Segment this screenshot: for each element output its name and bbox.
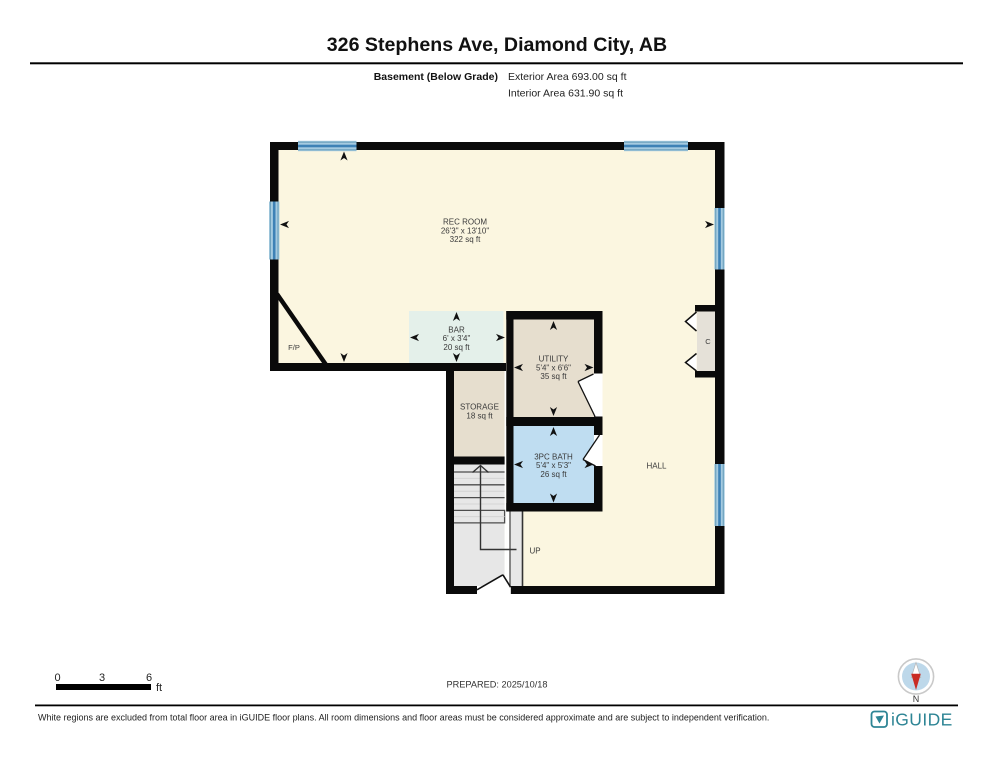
svg-text:Exterior Area 693.00 sq ft: Exterior Area 693.00 sq ft	[508, 71, 627, 83]
svg-text:C: C	[705, 337, 711, 346]
svg-text:26 sq ft: 26 sq ft	[540, 470, 567, 479]
svg-text:Basement (Below Grade): Basement (Below Grade)	[374, 71, 498, 83]
svg-text:BAR: BAR	[448, 326, 465, 335]
svg-text:26'3" x 13'10": 26'3" x 13'10"	[441, 226, 489, 235]
svg-text:3: 3	[99, 672, 105, 684]
svg-text:STORAGE: STORAGE	[460, 402, 499, 411]
svg-text:5'4" x 6'6": 5'4" x 6'6"	[536, 363, 571, 372]
svg-text:Interior Area 631.90 sq ft: Interior Area 631.90 sq ft	[508, 88, 623, 100]
svg-text:35 sq ft: 35 sq ft	[540, 372, 567, 381]
svg-text:322 sq ft: 322 sq ft	[450, 235, 481, 244]
svg-text:iGUIDE: iGUIDE	[891, 710, 953, 730]
svg-text:White regions are excluded fro: White regions are excluded from total fl…	[38, 713, 769, 723]
svg-text:5'4" x 5'3": 5'4" x 5'3"	[536, 461, 571, 470]
svg-text:20 sq ft: 20 sq ft	[443, 343, 470, 352]
svg-text:ft: ft	[156, 682, 162, 694]
svg-text:UTILITY: UTILITY	[539, 355, 569, 364]
svg-text:REC ROOM: REC ROOM	[443, 218, 487, 227]
svg-text:HALL: HALL	[646, 462, 667, 471]
svg-text:18 sq ft: 18 sq ft	[466, 411, 493, 420]
svg-text:F/P: F/P	[288, 343, 300, 352]
svg-text:6' x 3'4": 6' x 3'4"	[443, 334, 471, 343]
svg-text:UP: UP	[530, 547, 541, 556]
svg-text:3PC BATH: 3PC BATH	[534, 453, 573, 462]
svg-text:6: 6	[146, 672, 152, 684]
svg-text:326 Stephens Ave, Diamond City: 326 Stephens Ave, Diamond City, AB	[327, 34, 667, 56]
svg-text:PREPARED: 2025/10/18: PREPARED: 2025/10/18	[447, 680, 548, 690]
svg-text:N: N	[913, 694, 920, 704]
svg-text:0: 0	[54, 672, 60, 684]
